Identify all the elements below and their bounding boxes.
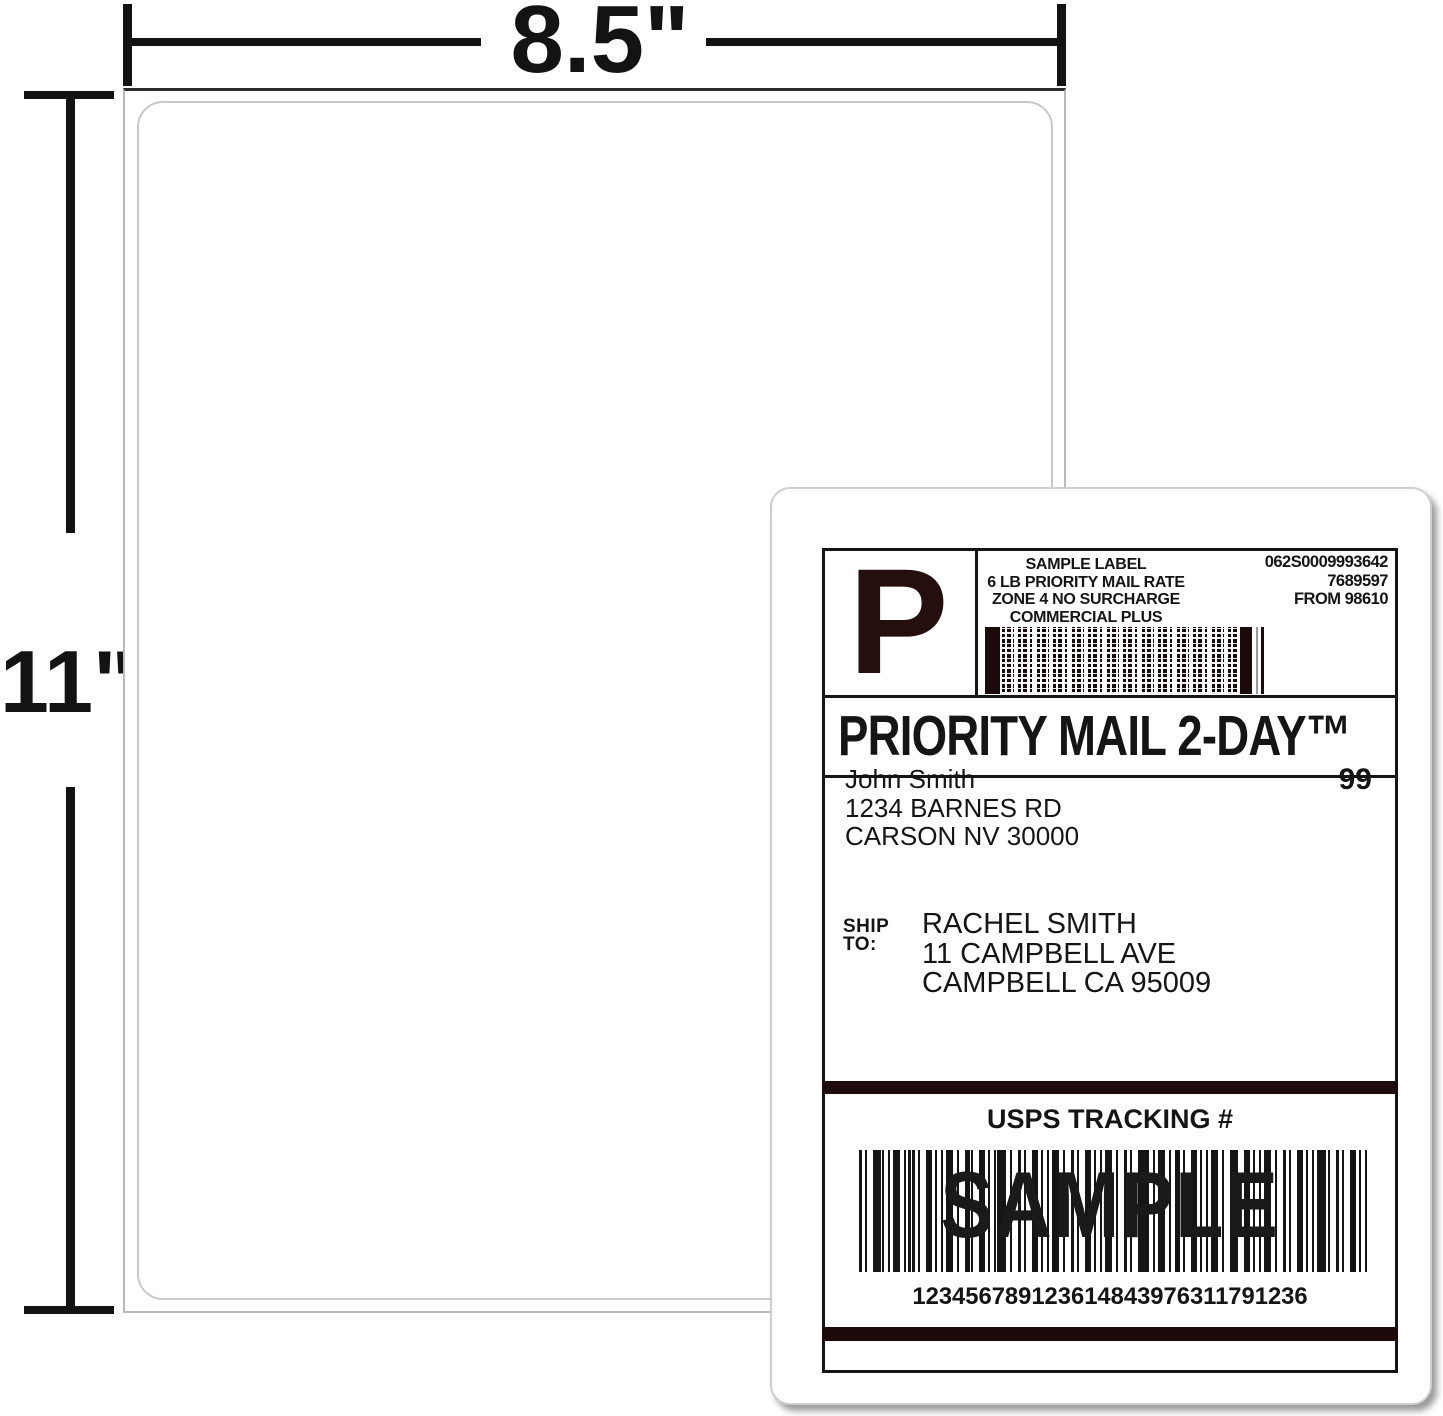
header-meta-block: 062S0009993642 7689597 FROM 98610 (1188, 553, 1388, 609)
header-meta-line-2: 7689597 (1188, 572, 1388, 591)
ship-to-label-line1: SHIP (843, 918, 889, 936)
dim-8p5-line-right (706, 38, 1058, 46)
recipient-city: CAMPBELL CA 95009 (922, 969, 1211, 999)
dim-8p5-label: 8.5" (497, 0, 703, 88)
tracking-title: USPS TRACKING # (822, 1104, 1398, 1134)
zone-number: 99 (1185, 765, 1385, 795)
pdf417-barcode (1002, 627, 1238, 694)
header-info-line-1: SAMPLE LABEL (978, 556, 1194, 574)
service-indicator-letter: P (822, 548, 975, 694)
dim-11-bottom-bracket (24, 1306, 114, 1314)
service-title: PRIORITY MAIL 2-DAY™ (838, 706, 1351, 766)
dim-8p5-right-endbar (1057, 4, 1066, 86)
ship-to-label: SHIP TO: (843, 918, 889, 953)
header-info-line-3: ZONE 4 NO SURCHARGE (978, 591, 1194, 609)
recipient-street: 11 CAMPBELL AVE (922, 940, 1211, 970)
dim-11-top-bracket (24, 91, 114, 99)
dim-8p5-line-left (131, 38, 481, 46)
dim-11-line-lower (66, 787, 75, 1306)
dim-11-label: 11" (0, 638, 126, 726)
header-meta-line-1: 062S0009993642 (1188, 553, 1388, 572)
pdf417-barcode-start-bar (985, 627, 1000, 694)
sender-street: 1234 BARNES RD (845, 794, 1079, 823)
header-meta-line-3: FROM 98610 (1188, 590, 1388, 609)
header-bottom-rule (822, 695, 1398, 698)
tracking-bottom-bar (822, 1327, 1398, 1341)
recipient-address-block: RACHEL SMITH 11 CAMPBELL AVE CAMPBELL CA… (922, 910, 1211, 999)
tracking-number: 123456789123614843976311791236 (831, 1283, 1390, 1310)
tracking-top-bar (822, 1081, 1398, 1094)
sample-watermark: SAMPLE (868, 1158, 1352, 1252)
dim-11-line-upper (66, 99, 75, 533)
pdf417-barcode-stop-bars (1240, 627, 1270, 694)
header-info-line-2: 6 LB PRIORITY MAIL RATE (978, 574, 1194, 592)
sender-name: John Smith (845, 765, 1079, 794)
product-image: 8.5" 8.27" 11" P SAMPLE LABEL 6 LB PRIOR… (0, 0, 1443, 1416)
recipient-name: RACHEL SMITH (922, 910, 1211, 940)
sender-address-block: John Smith 1234 BARNES RD CARSON NV 3000… (845, 765, 1079, 851)
ship-to-label-line2: TO: (843, 936, 889, 954)
sender-city: CARSON NV 30000 (845, 822, 1079, 851)
